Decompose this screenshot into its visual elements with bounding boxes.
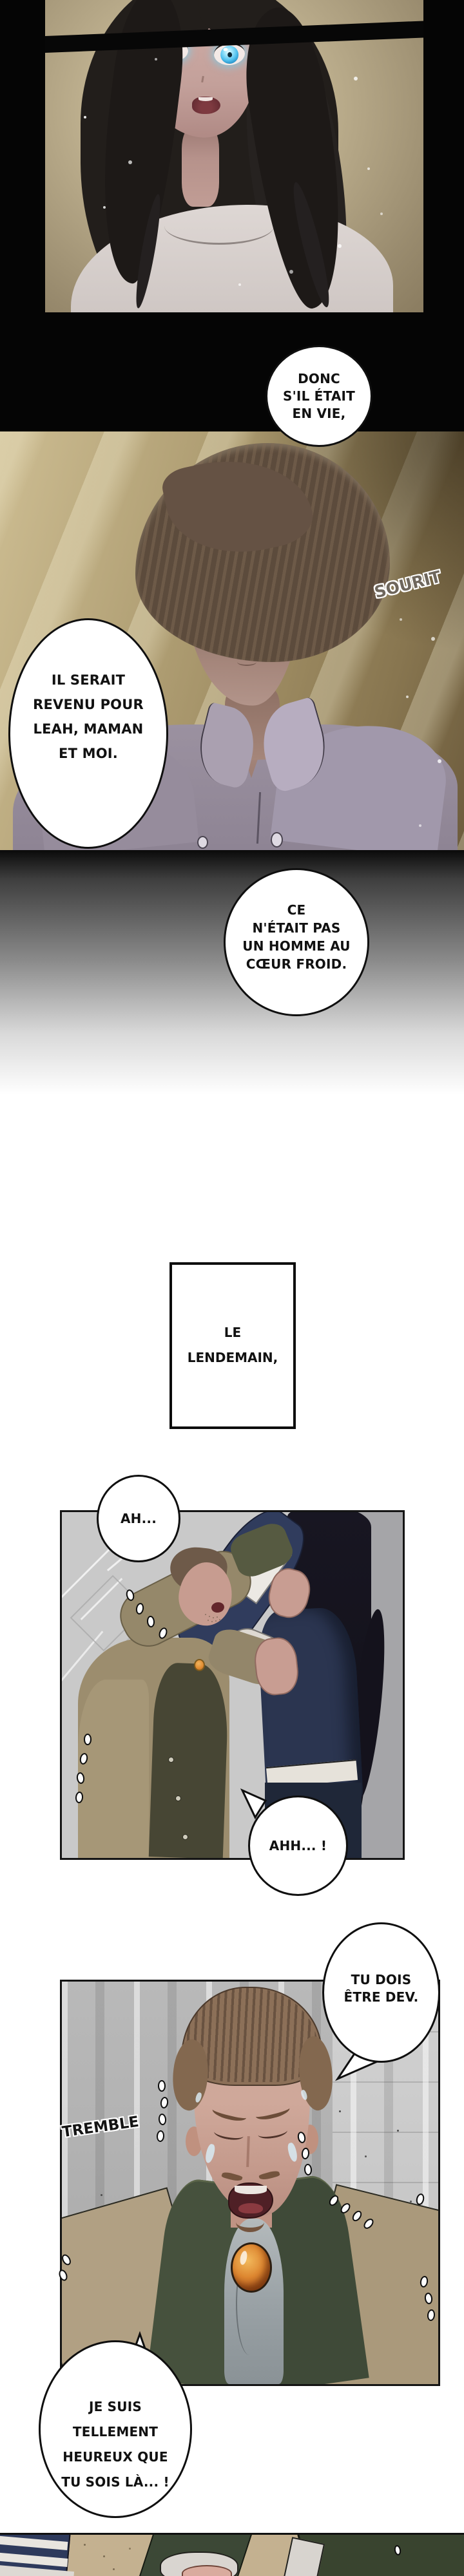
- narration-box-lendemain: LE LENDEMAIN,: [169, 1262, 296, 1429]
- bubble-line: TU DOIS: [344, 1971, 419, 1989]
- brooch-highlight: [239, 2250, 248, 2266]
- olive-pendant: [194, 1659, 205, 1671]
- bubble-line: ÊTRE DEV.: [344, 1989, 419, 2006]
- bubble-line: REVENU POUR: [33, 692, 144, 717]
- shirt-neckline: [164, 207, 274, 245]
- speech-bubble-ah: AH...: [97, 1475, 180, 1562]
- olive-coat-flap: [78, 1680, 149, 1858]
- speech-bubble-je-suis: JE SUIS TELLEMENT HEUREUX QUE TU SOIS LÀ…: [39, 2340, 192, 2518]
- panel-girl: [45, 0, 423, 312]
- bubble-line: AH...: [121, 1511, 157, 1526]
- caption-line: LE: [172, 1320, 293, 1345]
- speech-bubble-coeur-froid: CE N'ÉTAIT PAS UN HOMME AU CŒUR FROID.: [224, 868, 369, 1016]
- bubble-line: JE SUIS: [61, 2394, 169, 2420]
- speech-bubble-tu-dois: TU DOIS ÊTRE DEV.: [322, 1922, 440, 2063]
- girl-mouth: [192, 97, 220, 114]
- bubble-line: HEUREUX QUE: [61, 2445, 169, 2470]
- bubble-line: DONC: [298, 370, 340, 388]
- bubble-line: N'ÉTAIT PAS: [242, 919, 350, 937]
- action-mark: [158, 2080, 166, 2092]
- upper-teeth: [235, 2186, 267, 2194]
- bubble-line: TU SOIS LÀ... !: [61, 2470, 169, 2495]
- bubble-line: LEAH, MAMAN: [33, 717, 144, 741]
- girl-teeth: [198, 97, 213, 101]
- bubble-line: CŒUR FROID.: [242, 955, 350, 973]
- bubble-line: AHH... !: [269, 1838, 327, 1853]
- shirt-button-1: [197, 836, 208, 849]
- webtoon-page: DONC S'IL ÉTAIT EN VIE, IL SERAIT REVENU…: [0, 0, 464, 2576]
- speech-bubble-ahh: AHH... !: [248, 1795, 348, 1896]
- amber-brooch: [231, 2242, 272, 2293]
- speech-bubble-donc: DONC S'IL ÉTAIT EN VIE,: [266, 345, 372, 447]
- vest-button-3: [182, 1834, 188, 1840]
- bubble-line: IL SERAIT: [33, 668, 144, 692]
- bubble-line: S'IL ÉTAIT: [283, 388, 355, 405]
- bg-speckles-left: [101, 2194, 102, 2196]
- bg-speckles-right: [339, 2110, 341, 2112]
- girl-neck: [182, 126, 219, 207]
- shirt-button-2: [271, 832, 283, 848]
- speech-bubble-il-serait: IL SERAIT REVENU POUR LEAH, MAMAN ET MOI…: [8, 618, 168, 849]
- white-cuff-right: [282, 2537, 325, 2576]
- goatee: [236, 2212, 264, 2232]
- bubble-line: EN VIE,: [293, 405, 346, 422]
- olive-vest: [149, 1662, 229, 1859]
- bottom-speckles: [84, 2544, 86, 2546]
- vest-button-2: [175, 1795, 181, 1801]
- bubble-line: CE: [242, 901, 350, 919]
- vest-button-1: [168, 1757, 174, 1763]
- bubble-line: UN HOMME AU: [242, 937, 350, 955]
- panel-grab-scene: [60, 1510, 405, 1860]
- caption-line: LENDEMAIN,: [172, 1345, 293, 1370]
- action-mark: [84, 1734, 92, 1745]
- panel-bottom-cropped: [0, 2533, 464, 2576]
- bubble-line: ET MOI.: [33, 741, 144, 766]
- sparkle-dots: [84, 116, 86, 118]
- bubble-line: TELLEMENT: [61, 2420, 169, 2445]
- stubble-dots: [205, 1614, 206, 1615]
